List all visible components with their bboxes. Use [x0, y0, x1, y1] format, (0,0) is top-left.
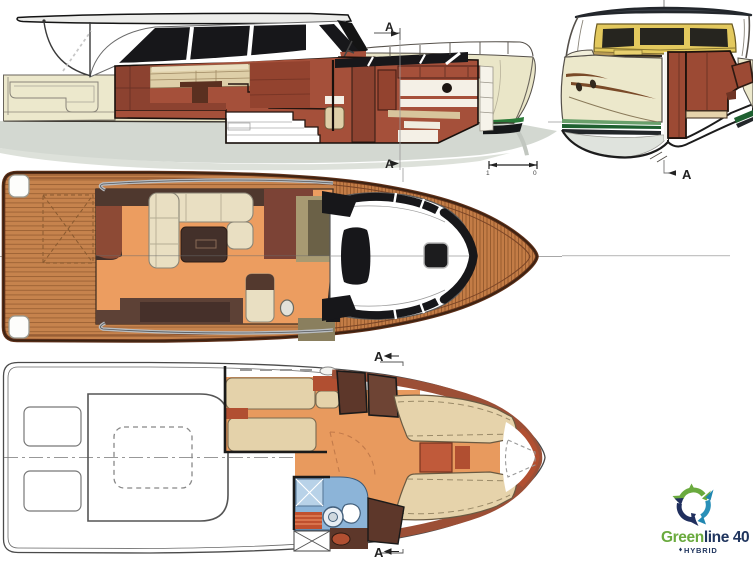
svg-text:1: 1: [486, 170, 490, 177]
svg-text:Greenline 40: Greenline 40: [661, 529, 749, 546]
svg-text:A: A: [374, 545, 384, 560]
svg-text:HYBRID: HYBRID: [684, 546, 718, 555]
svg-text:A: A: [682, 167, 692, 182]
svg-text:0: 0: [533, 170, 537, 177]
svg-text:A: A: [374, 349, 384, 364]
